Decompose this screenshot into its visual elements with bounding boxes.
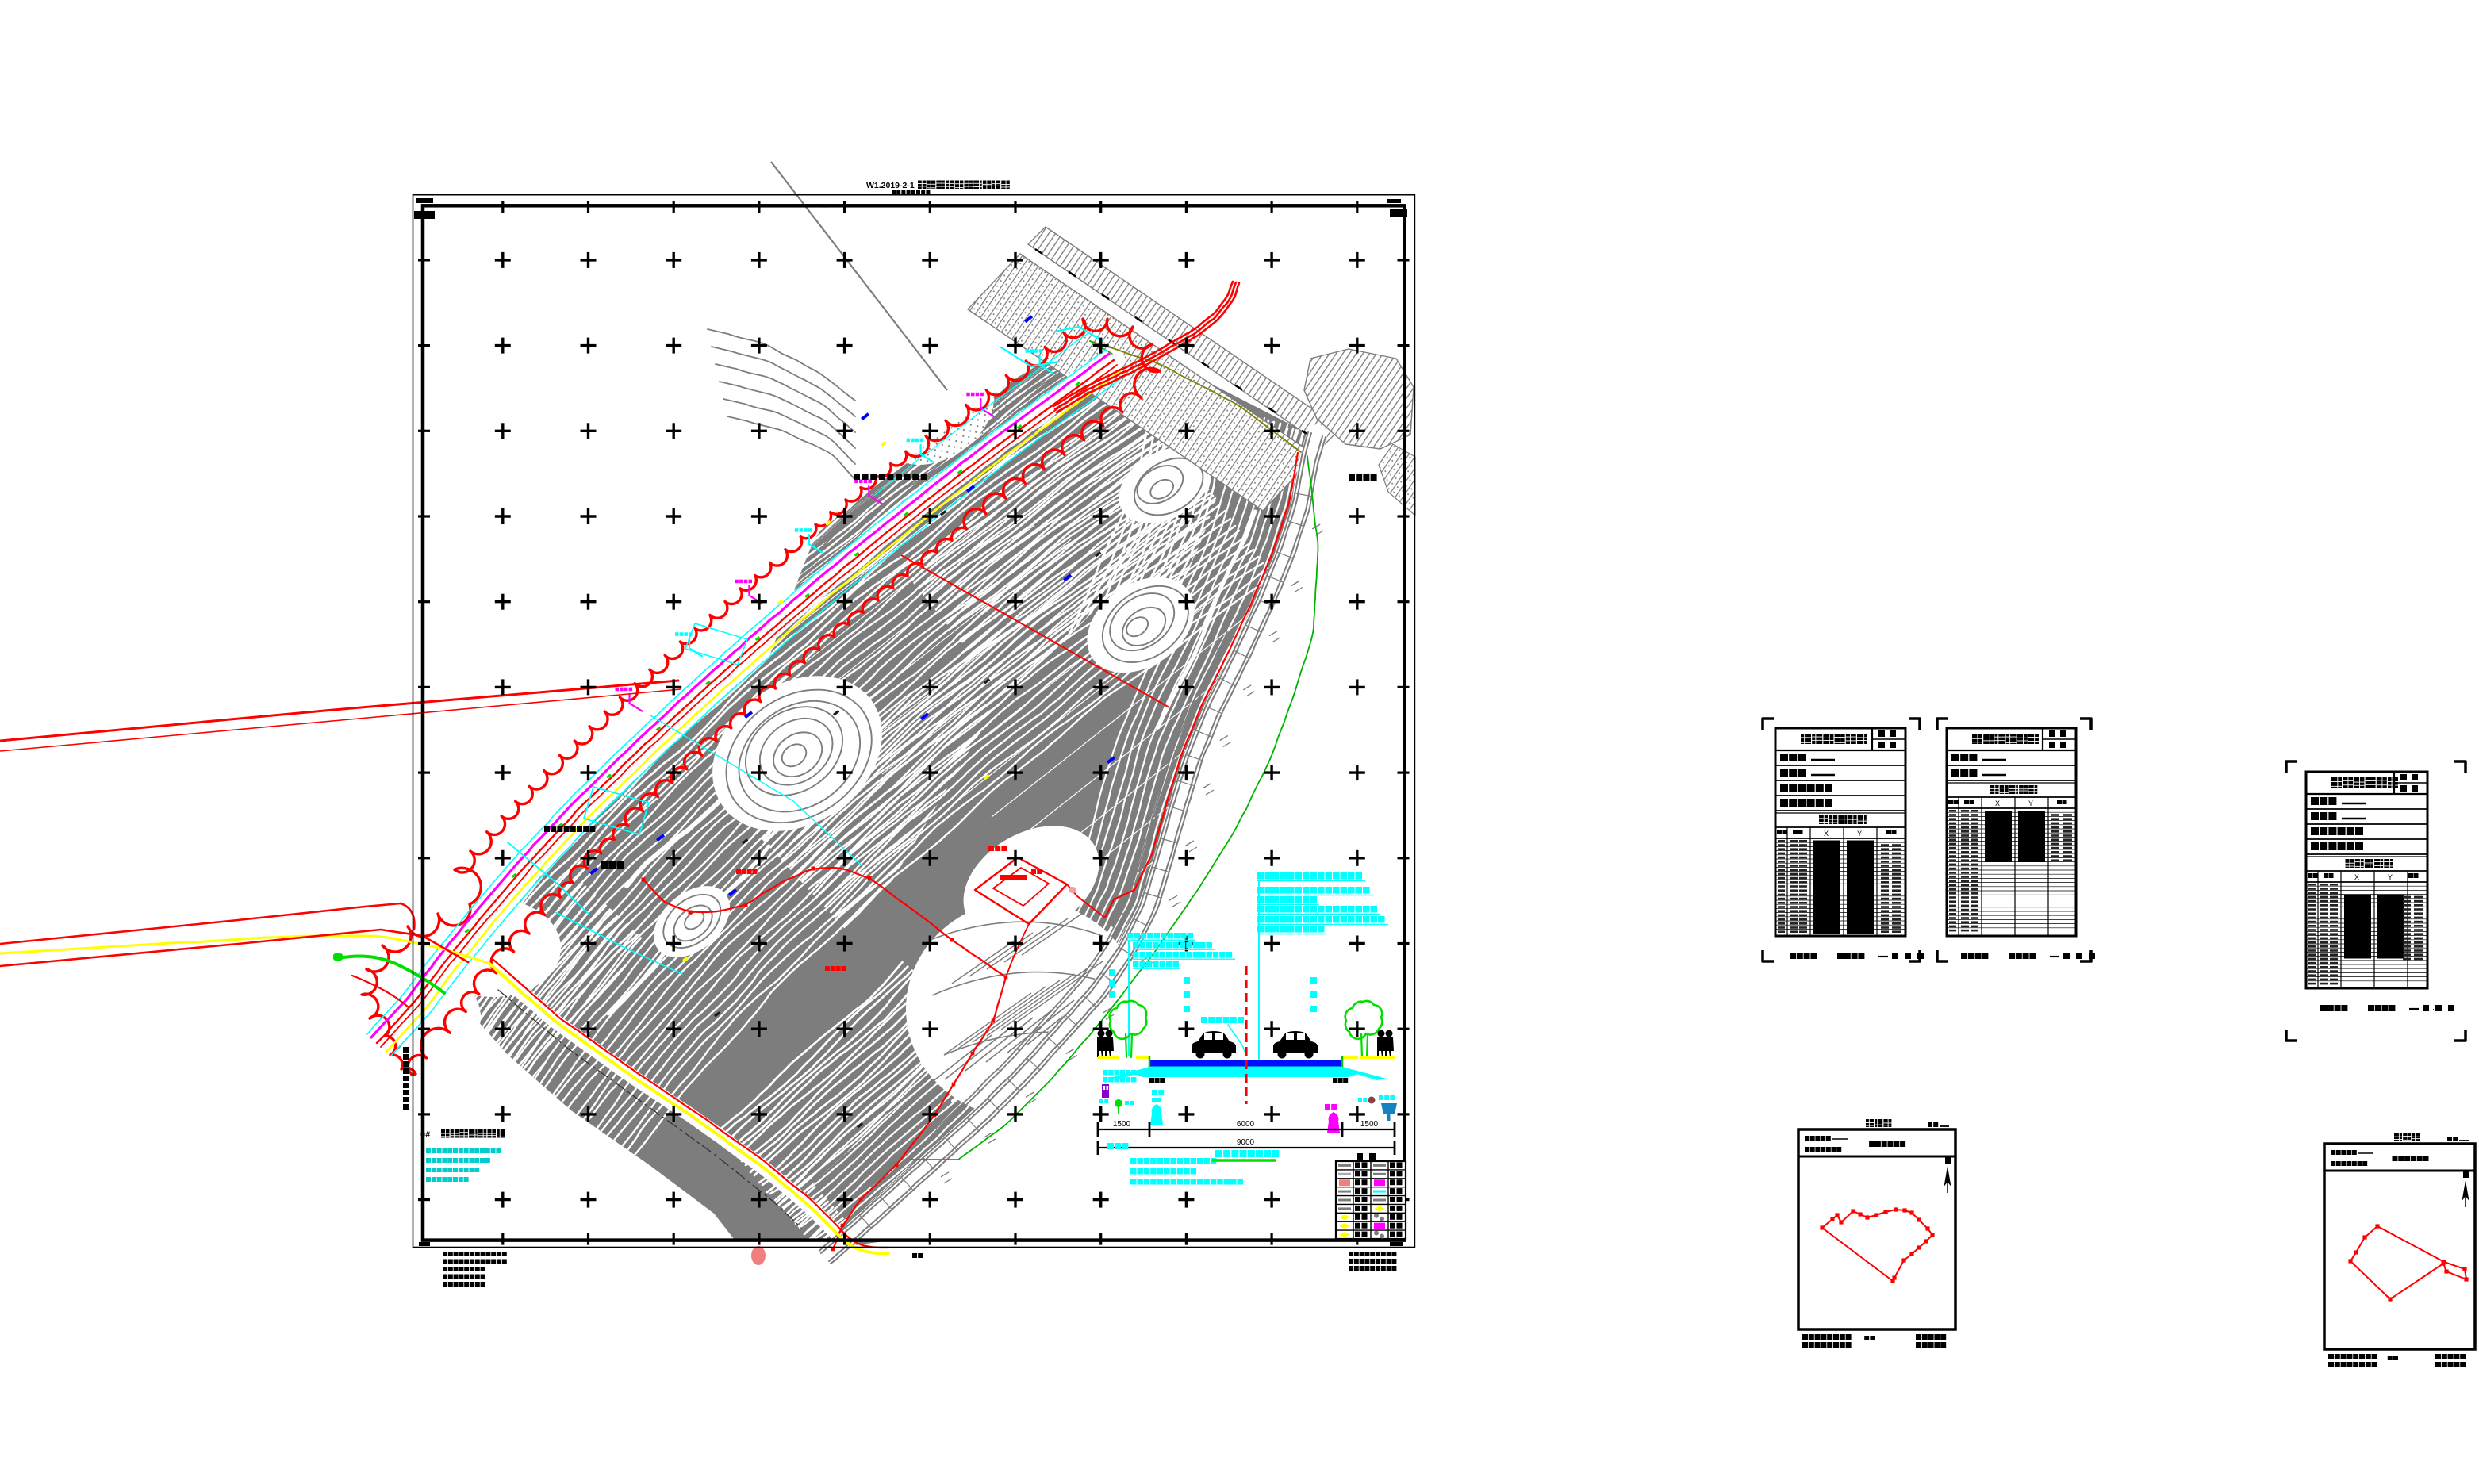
- svg-text:X: X: [1995, 800, 2000, 807]
- svg-text:6000: 6000: [1237, 1120, 1255, 1129]
- svg-text:·: ·: [2073, 953, 2075, 961]
- svg-text:Y: Y: [1857, 830, 1862, 838]
- svg-text:1500: 1500: [1113, 1120, 1131, 1129]
- svg-text:·: ·: [2432, 1005, 2435, 1013]
- svg-text:·: ·: [1901, 953, 1904, 961]
- svg-text:·: ·: [2086, 953, 2088, 961]
- svg-text:Y: Y: [2388, 873, 2393, 881]
- svg-text:1500: 1500: [1360, 1120, 1379, 1129]
- svg-text:Y: Y: [2028, 800, 2033, 807]
- svg-text:W1.2019-2-1: W1.2019-2-1: [866, 181, 915, 190]
- svg-text:·: ·: [1914, 953, 1917, 961]
- svg-text:X: X: [1824, 830, 1829, 838]
- svg-text:X: X: [2354, 873, 2359, 881]
- svg-text:9000: 9000: [1237, 1138, 1255, 1147]
- svg-text:·: ·: [2445, 1005, 2447, 1013]
